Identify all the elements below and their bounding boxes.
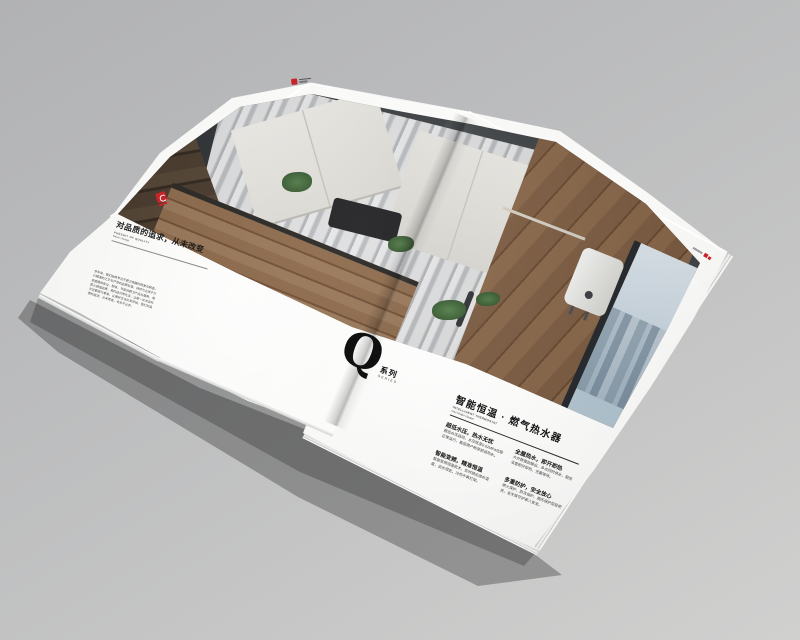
brand-logo-glyph-icon <box>158 193 167 202</box>
top-margin-logo-mark-icon <box>291 78 298 85</box>
top-margin-logo-text-bars <box>299 77 311 83</box>
brochure-mockup-scene: 对品质的追求，从未改变 PURSUIT OF QUALITY Never cha… <box>0 0 800 640</box>
left-page-body-paragraph: 多年来，我们始终专注于厨卫电器的研发与制造， 以精湛的工艺与严苛的品质标准，持续… <box>87 269 239 338</box>
